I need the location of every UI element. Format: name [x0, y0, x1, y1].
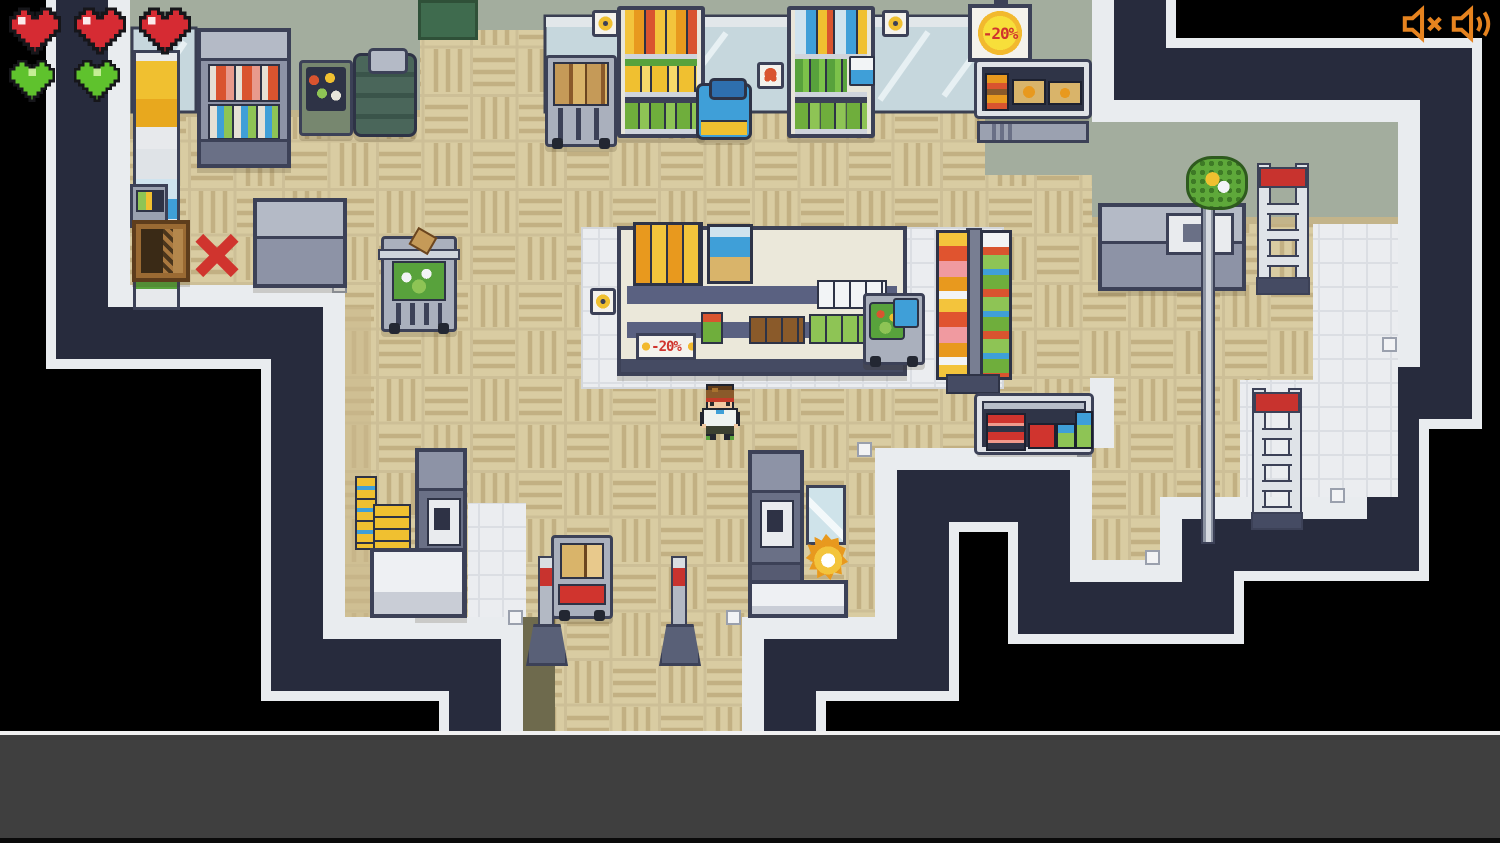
hazard-wall-sign-icon: [592, 10, 619, 37]
shield-heart-icon: [73, 58, 121, 104]
step-ladder-2: [1251, 388, 1303, 530]
chest-display-freezer: [977, 396, 1091, 452]
produce-cart: [863, 293, 925, 365]
blocked-x-marker: [194, 232, 240, 278]
lettuce-cart: [381, 236, 457, 332]
chest-freezer: [253, 198, 347, 288]
checkout-counter-2: [748, 580, 848, 618]
shelf-rack-drinks: [787, 6, 875, 138]
sign-pole: [1201, 196, 1215, 544]
health-heart-icon: [73, 6, 127, 56]
player-sprite-icon: [694, 382, 746, 444]
checkout-terminal-2: [748, 450, 804, 587]
volume-button[interactable]: [1449, 5, 1495, 43]
health-heart-icon: [8, 6, 62, 56]
wooden-crate: [132, 220, 190, 282]
hazard-wall-sign-icon: [882, 10, 909, 37]
shelf-rack-cereal: [617, 6, 705, 138]
hanging-plant-icon: [1186, 156, 1248, 210]
discount-label: -20%: [651, 339, 681, 355]
service-counter: [1098, 203, 1246, 291]
freezer-base: [977, 121, 1089, 143]
island-side-sign-icon: [590, 288, 616, 315]
mute-button[interactable]: [1400, 5, 1446, 43]
discount-label: -20%: [983, 24, 1018, 43]
box-pallet: [355, 476, 407, 550]
island-discount-sign: -20%: [636, 333, 696, 360]
hanging-discount-sign: -20%: [968, 4, 1032, 62]
cooler-bag: [696, 83, 752, 140]
barrel-stack: [353, 53, 417, 137]
checkout-counter-1: [370, 548, 466, 618]
fridge-display: [197, 28, 291, 168]
snack-tower-rack: [936, 228, 1006, 394]
bottom-bar: [0, 731, 1500, 843]
entrance-bollard-left: [526, 556, 562, 666]
game-viewport: -20% -20%: [0, 0, 1500, 843]
floor-mat: [418, 0, 478, 40]
produce-basket: [299, 60, 353, 136]
health-hearts: [8, 6, 192, 56]
health-heart-icon: [138, 6, 192, 56]
stock-cart: [545, 55, 617, 147]
crab-wall-sign-icon: [757, 62, 784, 89]
entrance-bollard-right: [659, 556, 695, 666]
step-ladder-1: [1256, 163, 1310, 295]
display-freezer: [977, 62, 1089, 116]
speaker-muted-icon: [1400, 5, 1446, 43]
player-character: [694, 382, 746, 444]
shield-heart-icon: [8, 58, 56, 104]
speaker-waves-icon: [1449, 5, 1495, 43]
shield-hearts: [8, 58, 121, 104]
wall-stub: [1090, 378, 1114, 448]
sign-mount: [994, 0, 1008, 6]
